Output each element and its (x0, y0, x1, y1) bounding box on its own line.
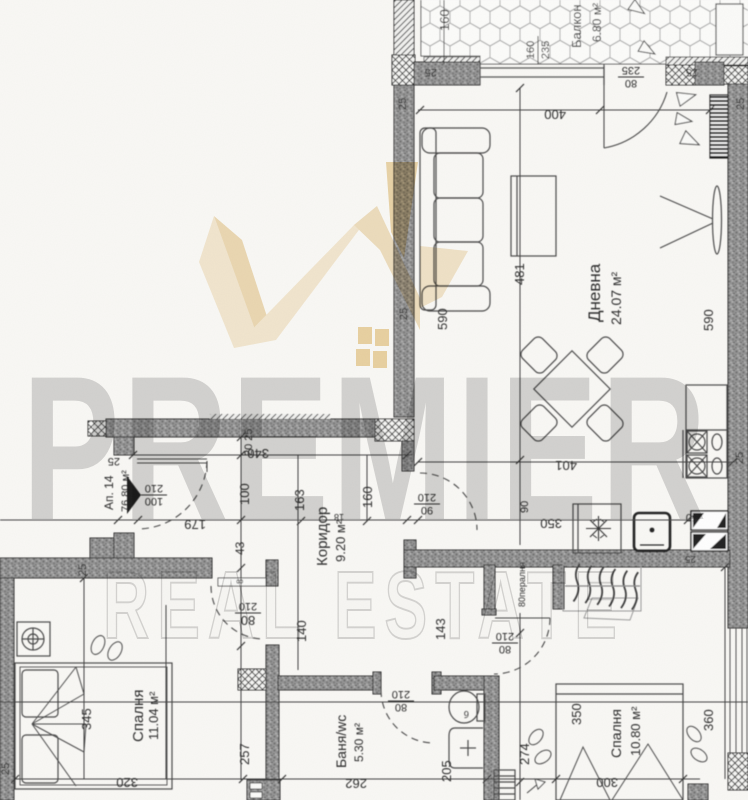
svg-text:REAL ESTATE: REAL ESTATE (103, 552, 625, 659)
svg-text:PREMIER: PREMIER (22, 332, 709, 562)
